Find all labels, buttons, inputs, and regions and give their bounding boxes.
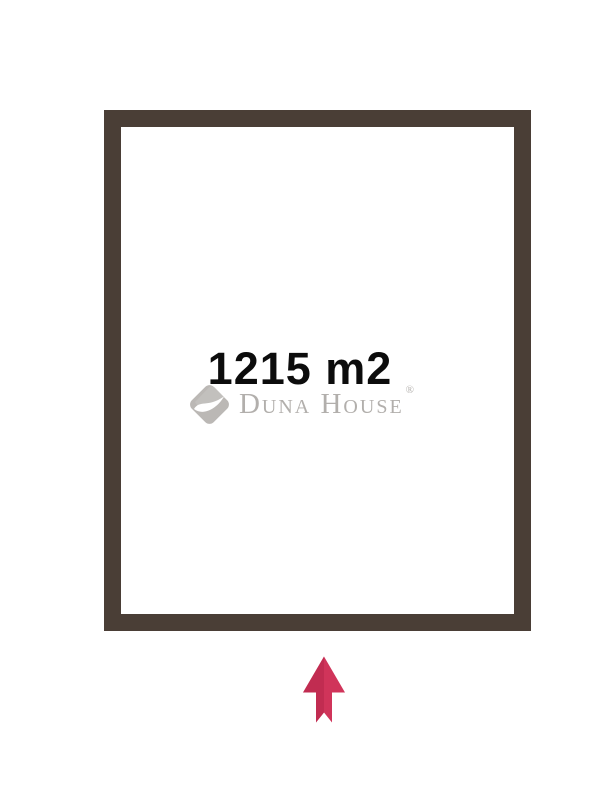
plot-area-label: 1215 m2 <box>0 346 600 391</box>
north-arrow-icon <box>303 656 345 723</box>
plot-placeholder-image: Duna House ® 1215 m2 <box>0 0 600 800</box>
